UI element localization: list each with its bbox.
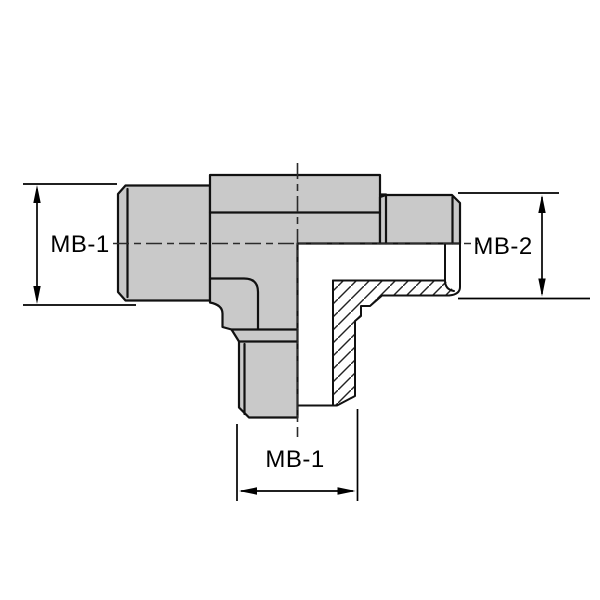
dimension-label-left: MB-1 (50, 231, 109, 258)
arrowhead-down-icon (538, 279, 545, 297)
dimension-bottom: MB-1 (237, 409, 358, 501)
dimension-right: MB-2 (458, 193, 590, 299)
section-cut (298, 244, 461, 406)
arrowhead-up-icon (538, 195, 545, 213)
arrowhead-right-icon (338, 487, 356, 494)
section-outlines (298, 244, 461, 406)
arrowhead-left-icon (239, 487, 257, 494)
section-hatch-area (333, 281, 454, 406)
arrowhead-down-icon (33, 286, 40, 304)
section-step-profile (298, 296, 450, 406)
dimension-label-bottom: MB-1 (265, 446, 324, 473)
tee-fitting-technical-drawing: MB-1 MB-2 MB-1 (0, 0, 600, 600)
right-port-outline (380, 195, 460, 244)
drawing-canvas: MB-1 MB-2 MB-1 (0, 0, 600, 600)
dimension-label-right: MB-2 (473, 233, 532, 260)
left-port-outline (118, 186, 210, 301)
arrowhead-up-icon (33, 185, 40, 203)
